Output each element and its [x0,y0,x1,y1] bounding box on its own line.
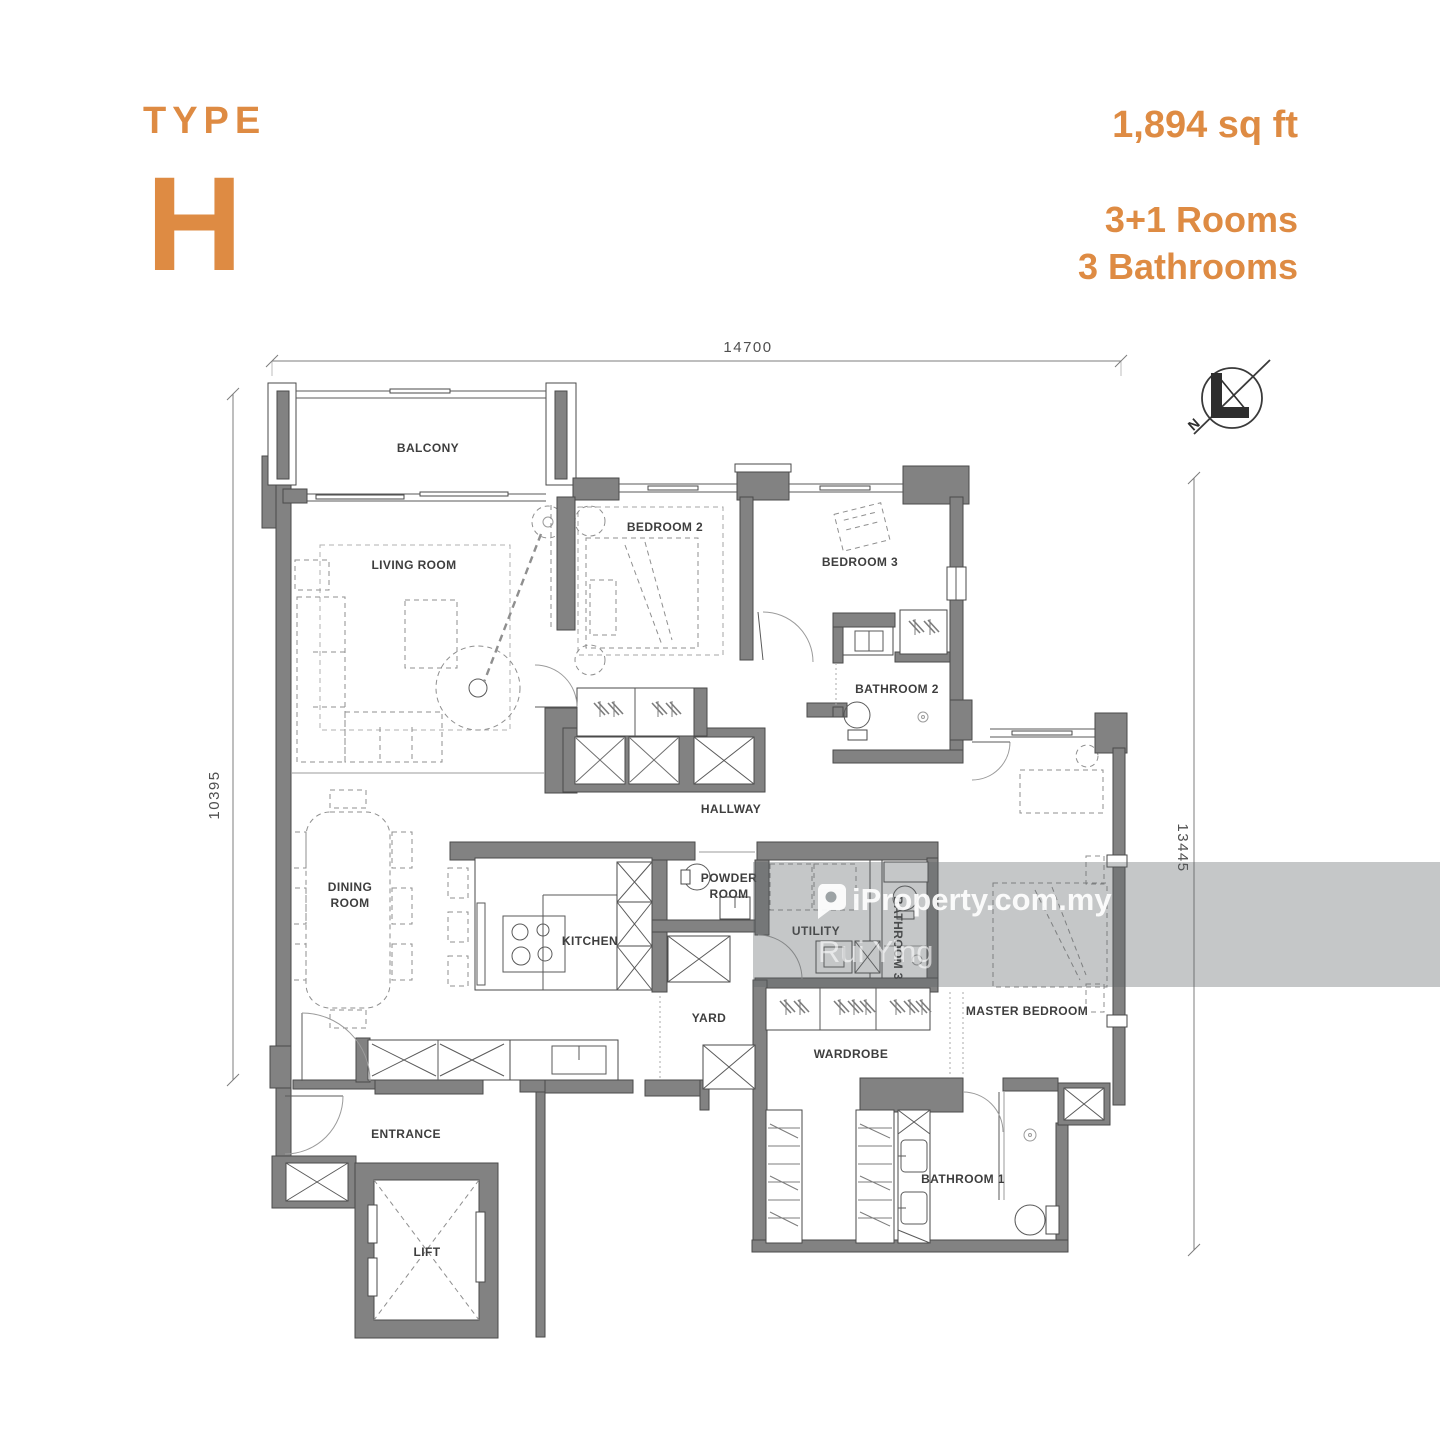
floor-plan-svg: BALCONY LIVING ROOM BEDROOM 2 BEDROOM 3 … [0,0,1440,1439]
label-powder-room-1: POWDER [701,871,757,885]
label-dining-room-1: DINING [328,880,372,894]
label-bathroom-1: BATHROOM 1 [921,1172,1005,1186]
north-compass-icon: N [1185,360,1270,434]
label-balcony: BALCONY [397,441,459,455]
label-yard: YARD [692,1011,727,1025]
dimension-top: 14700 [723,339,772,356]
label-wardrobe: WARDROBE [814,1047,889,1061]
watermark: iProperty.com.my Rui Ying [753,862,1440,987]
label-living-room: LIVING ROOM [371,558,456,572]
watermark-brand: iProperty.com.my [852,882,1112,917]
label-dining-room-2: ROOM [331,896,370,910]
label-master-bedroom: MASTER BEDROOM [966,1004,1088,1018]
label-lift: LIFT [414,1245,441,1259]
dimension-lines: 14700 10395 13445 [206,339,1200,1256]
label-kitchen: KITCHEN [562,934,618,948]
watermark-agent: Rui Ying [818,934,933,969]
compass-north-label: N [1185,415,1203,434]
floorplan-page: TYPE H 1,894 sq ft 3+1 Rooms 3 Bathrooms [0,0,1440,1439]
label-bedroom-3: BEDROOM 3 [822,555,898,569]
label-bathroom-2: BATHROOM 2 [855,682,939,696]
label-bedroom-2: BEDROOM 2 [627,520,703,534]
label-entrance: ENTRANCE [371,1127,441,1141]
label-hallway: HALLWAY [701,802,761,816]
dimension-left: 10395 [206,770,223,819]
label-powder-room-2: ROOM [710,887,749,901]
room-labels: BALCONY LIVING ROOM BEDROOM 2 BEDROOM 3 … [328,441,1088,1259]
